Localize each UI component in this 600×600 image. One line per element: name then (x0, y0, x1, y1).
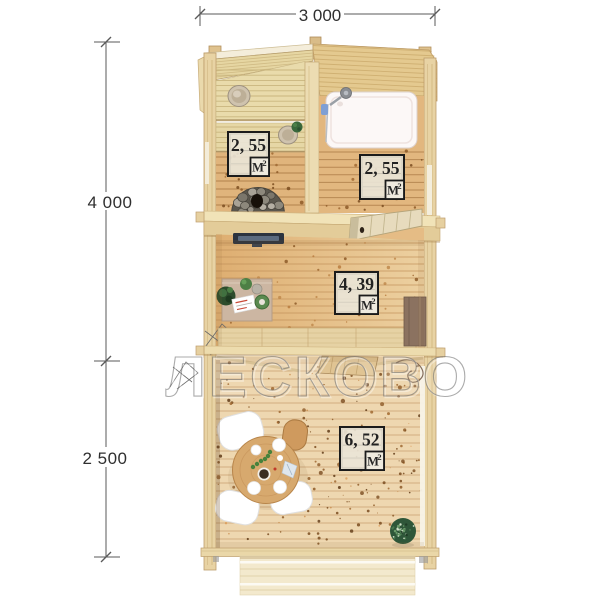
svg-text:2 500: 2 500 (82, 449, 127, 468)
svg-text:2: 2 (377, 452, 381, 462)
svg-text:4 000: 4 000 (87, 193, 132, 212)
svg-text:2: 2 (371, 296, 375, 306)
svg-text:2: 2 (262, 158, 266, 168)
svg-text:2: 2 (397, 181, 401, 191)
svg-text:2, 55: 2, 55 (231, 135, 266, 155)
svg-text:2, 55: 2, 55 (365, 158, 400, 178)
svg-text:4, 39: 4, 39 (339, 274, 374, 294)
svg-text:3 000: 3 000 (299, 6, 342, 25)
svg-text:ЛЕСКОВО: ЛЕСКОВО (166, 345, 471, 409)
svg-text:6, 52: 6, 52 (345, 430, 380, 450)
